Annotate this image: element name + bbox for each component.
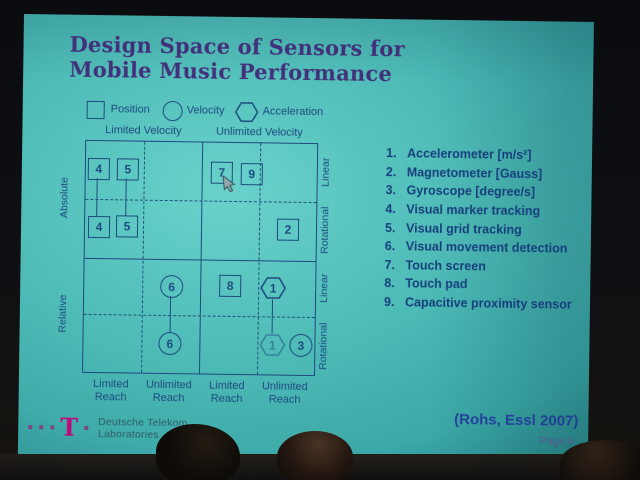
sensor-node-label: 2: [285, 223, 292, 237]
sensor-node-label: 9: [248, 167, 255, 181]
sensor-node-label: 1: [270, 281, 277, 295]
velocity-circle-icon: [163, 101, 183, 121]
slide-title: Design Space of Sensors for Mobile Music…: [69, 33, 405, 87]
acceleration-hexagon-icon: [235, 102, 259, 122]
citation: (Rohs, Essl 2007): [454, 411, 578, 430]
logo-dot-icon: [39, 425, 43, 429]
reach-label-3: Limited Reach: [209, 380, 245, 406]
sensor-number: 1.: [386, 146, 407, 160]
sensor-node-label: 6: [168, 280, 175, 294]
sensor-node-label: 6: [166, 337, 173, 351]
reach-label-line: Unlimited: [146, 379, 192, 393]
page-number: Page 6: [539, 435, 574, 447]
reach-label-line: Reach: [93, 391, 129, 404]
sensor-node-label: 8: [227, 279, 234, 293]
sensor-number: 2.: [386, 165, 407, 179]
logo-dot-icon: [50, 425, 54, 429]
sensor-node-square-4b: 4: [88, 216, 110, 238]
sensor-number: 4.: [385, 202, 406, 216]
sensor-list-item: 9.Capacitive proximity sensor: [384, 293, 572, 314]
sensor-node-label: 4: [96, 220, 103, 234]
sensor-number: 3.: [385, 184, 406, 198]
grid-divider-vertical: [199, 143, 203, 374]
sensor-node-square-2: 2: [277, 219, 299, 241]
reach-label-line: Unlimited: [262, 380, 308, 394]
reach-label-line: Reach: [262, 393, 308, 407]
sensor-label: Accelerometer [m/s²]: [407, 147, 532, 163]
row-label-rotational-1: Rotational: [319, 207, 332, 254]
sensor-label: Touch pad: [405, 277, 467, 292]
mouse-cursor-icon: [222, 175, 235, 198]
audience-head-silhouette: [560, 440, 640, 480]
telekom-t-icon: T: [60, 416, 78, 440]
sensor-number: 7.: [384, 258, 405, 272]
reach-label-line: Limited: [93, 378, 129, 391]
logo-dot-icon: [85, 426, 89, 430]
sensor-node-label: 1: [269, 338, 276, 352]
reach-label-1: Limited Reach: [93, 378, 129, 404]
sensor-node-label: 5: [124, 162, 131, 176]
reach-label-line: Limited: [209, 380, 245, 393]
row-label-rotational-2: Rotational: [317, 322, 330, 369]
position-square-icon: [87, 101, 105, 119]
reach-label-line: Reach: [146, 392, 192, 406]
row-label-linear-1: Linear: [320, 158, 332, 187]
sensor-label: Visual marker tracking: [406, 202, 540, 218]
row-label-relative: Relative: [57, 295, 70, 333]
sensor-label: Visual grid tracking: [406, 221, 522, 237]
sensor-node-hexagon-1: 1: [260, 276, 286, 299]
sensor-label: Touch screen: [405, 258, 486, 273]
photo-of-projected-slide: Design Space of Sensors for Mobile Music…: [0, 0, 640, 480]
slide-title-line2: Mobile Music Performance: [69, 57, 405, 86]
sensor-number: 8.: [384, 277, 405, 291]
grid-dashed-vertical-1: [141, 142, 145, 373]
sensor-number: 6.: [385, 239, 406, 253]
logo-dot-icon: [28, 425, 32, 429]
sensor-node-label: 5: [124, 219, 131, 233]
legend-acceleration-label: Acceleration: [263, 105, 324, 118]
sensor-list: 1.Accelerometer [m/s²] 2.Magnetometer [G…: [384, 144, 574, 314]
sensor-node-label: 3: [297, 338, 304, 352]
row-label-absolute: Absolute: [58, 177, 71, 218]
audience-head-silhouette: [277, 431, 353, 480]
sensor-node-square-8: 8: [219, 275, 241, 297]
sensor-node-square-5: 5: [117, 158, 139, 180]
sensor-node-square-5b: 5: [116, 215, 138, 237]
sensor-node-label: 4: [95, 162, 102, 176]
reach-label-4: Unlimited Reach: [262, 380, 308, 407]
sensor-number: 9.: [384, 295, 405, 309]
sensor-number: 5.: [385, 221, 406, 235]
sensor-label: Visual movement detection: [406, 240, 568, 256]
presentation-slide: Design Space of Sensors for Mobile Music…: [18, 14, 594, 462]
sensor-label: Magnetometer [Gauss]: [407, 165, 543, 181]
sensor-node-square-4: 4: [88, 158, 110, 180]
legend-velocity-label: Velocity: [187, 104, 225, 117]
legend-position-label: Position: [111, 103, 150, 116]
column-header-unlimited-velocity: Unlimited Velocity: [216, 126, 303, 139]
column-header-limited-velocity: Limited Velocity: [105, 124, 182, 137]
sensor-node-square-9: 9: [241, 163, 263, 185]
sensor-node-hexagon-1b: 1: [259, 333, 285, 356]
sensor-label: Capacitive proximity sensor: [405, 295, 572, 311]
sensor-label: Gyroscope [degree/s]: [406, 184, 535, 200]
reach-label-line: Reach: [209, 393, 245, 406]
row-label-linear-2: Linear: [318, 274, 330, 303]
reach-label-2: Unlimited Reach: [146, 379, 192, 406]
